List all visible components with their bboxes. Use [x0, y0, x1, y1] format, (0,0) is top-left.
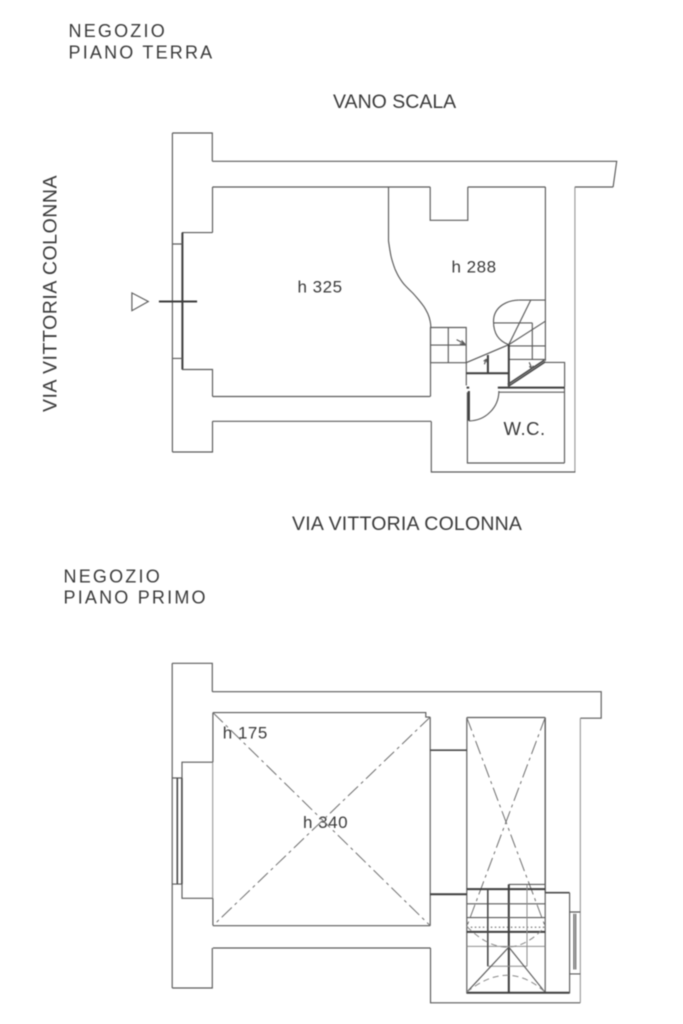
svg-text:NEGOZIO: NEGOZIO: [69, 21, 167, 41]
svg-text:h 175: h 175: [223, 724, 268, 743]
svg-text:h 325: h 325: [298, 278, 343, 297]
svg-text:PIANO PRIMO: PIANO PRIMO: [64, 588, 208, 608]
svg-text:NEGOZIO: NEGOZIO: [64, 567, 162, 587]
svg-text:PIANO TERRA: PIANO TERRA: [69, 42, 215, 62]
svg-text:h 288: h 288: [452, 258, 497, 277]
svg-text:VANO SCALA: VANO SCALA: [333, 91, 456, 113]
svg-text:VIA VITTORIA COLONNA: VIA VITTORIA COLONNA: [40, 175, 62, 412]
svg-text:VIA VITTORIA COLONNA: VIA VITTORIA COLONNA: [292, 513, 522, 535]
svg-text:W.C.: W.C.: [504, 418, 546, 439]
